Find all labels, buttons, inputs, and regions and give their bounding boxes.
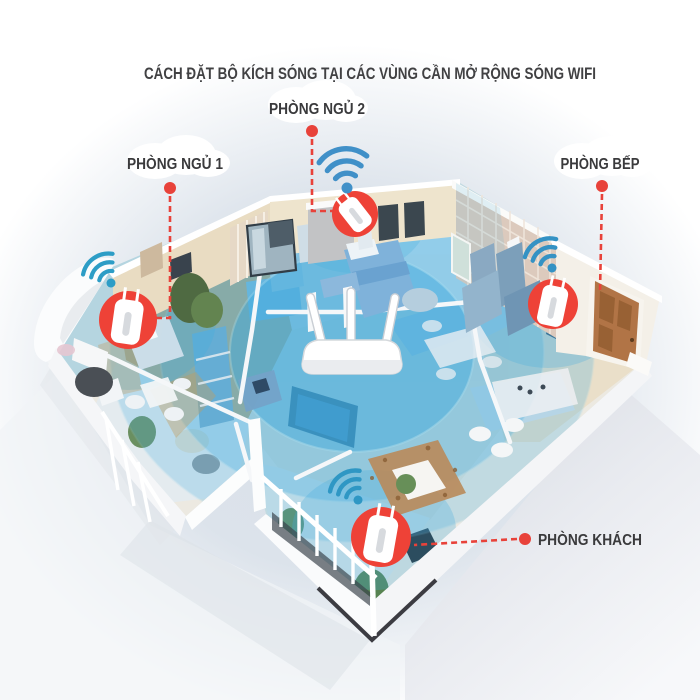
svg-text:CÁCH ĐẶT BỘ KÍCH SÓNG TẠI CÁC: CÁCH ĐẶT BỘ KÍCH SÓNG TẠI CÁC VÙNG CẦN M… [144, 64, 596, 83]
svg-text:PHÒNG NGỦ 1: PHÒNG NGỦ 1 [127, 155, 223, 173]
svg-text:PHÒNG KHÁCH: PHÒNG KHÁCH [538, 531, 642, 549]
svg-text:PHÒNG NGỦ 2: PHÒNG NGỦ 2 [269, 100, 365, 118]
svg-text:PHÒNG BẾP: PHÒNG BẾP [561, 155, 640, 173]
